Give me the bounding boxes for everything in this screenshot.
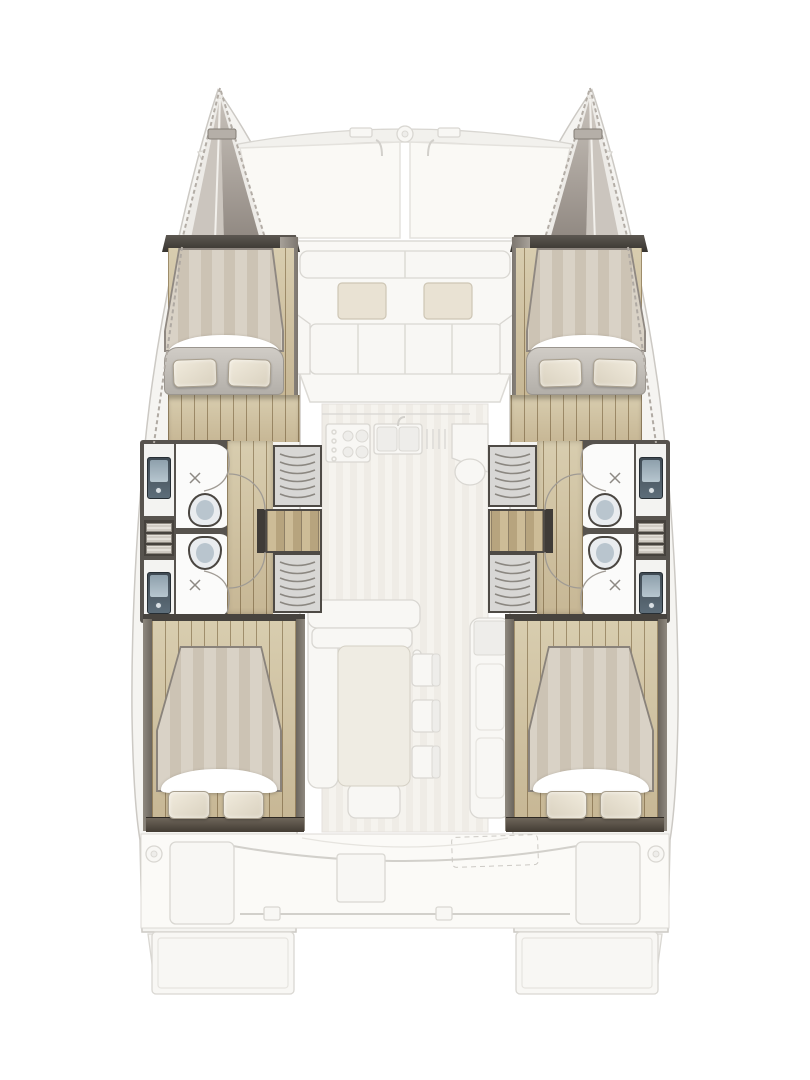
hull-detail-overlay	[482, 85, 682, 835]
starboard-hull	[482, 85, 682, 835]
foredeck-bench	[310, 324, 502, 374]
gunwale-edge	[154, 247, 182, 443]
dining-chairs	[412, 654, 440, 778]
shower-drain	[190, 580, 200, 590]
swim-platform-port	[152, 932, 294, 994]
shower-door-arc	[204, 571, 229, 613]
salon-table	[338, 646, 410, 786]
cockpit-seat-locker	[170, 842, 234, 924]
shower-door-arc	[581, 449, 606, 491]
door-swing-arc	[545, 552, 581, 588]
ghost-deck-layer	[0, 0, 810, 1080]
center-hatch	[337, 854, 385, 902]
ghost-aft-cockpit	[141, 834, 669, 994]
swim-platform-starboard	[516, 932, 658, 994]
shower-door-arc	[204, 449, 229, 491]
door-swing-arc	[229, 552, 265, 588]
round-basin	[455, 459, 485, 485]
foredeck-cushion	[424, 283, 472, 319]
cockpit-seat-locker	[576, 842, 640, 924]
aft-bench	[348, 784, 400, 818]
door-swing-arc	[229, 474, 265, 510]
shower-drain	[190, 473, 200, 483]
shower-door-arc	[581, 571, 606, 613]
foredeck-cushion	[338, 283, 386, 319]
catamaran-floor-plan	[0, 0, 810, 1080]
door-swing-arc	[545, 474, 581, 510]
port-hull	[128, 85, 328, 835]
shower-drain	[610, 473, 620, 483]
hull-detail-overlay	[128, 85, 328, 835]
gunwale-edge	[628, 247, 656, 443]
shower-drain	[610, 580, 620, 590]
